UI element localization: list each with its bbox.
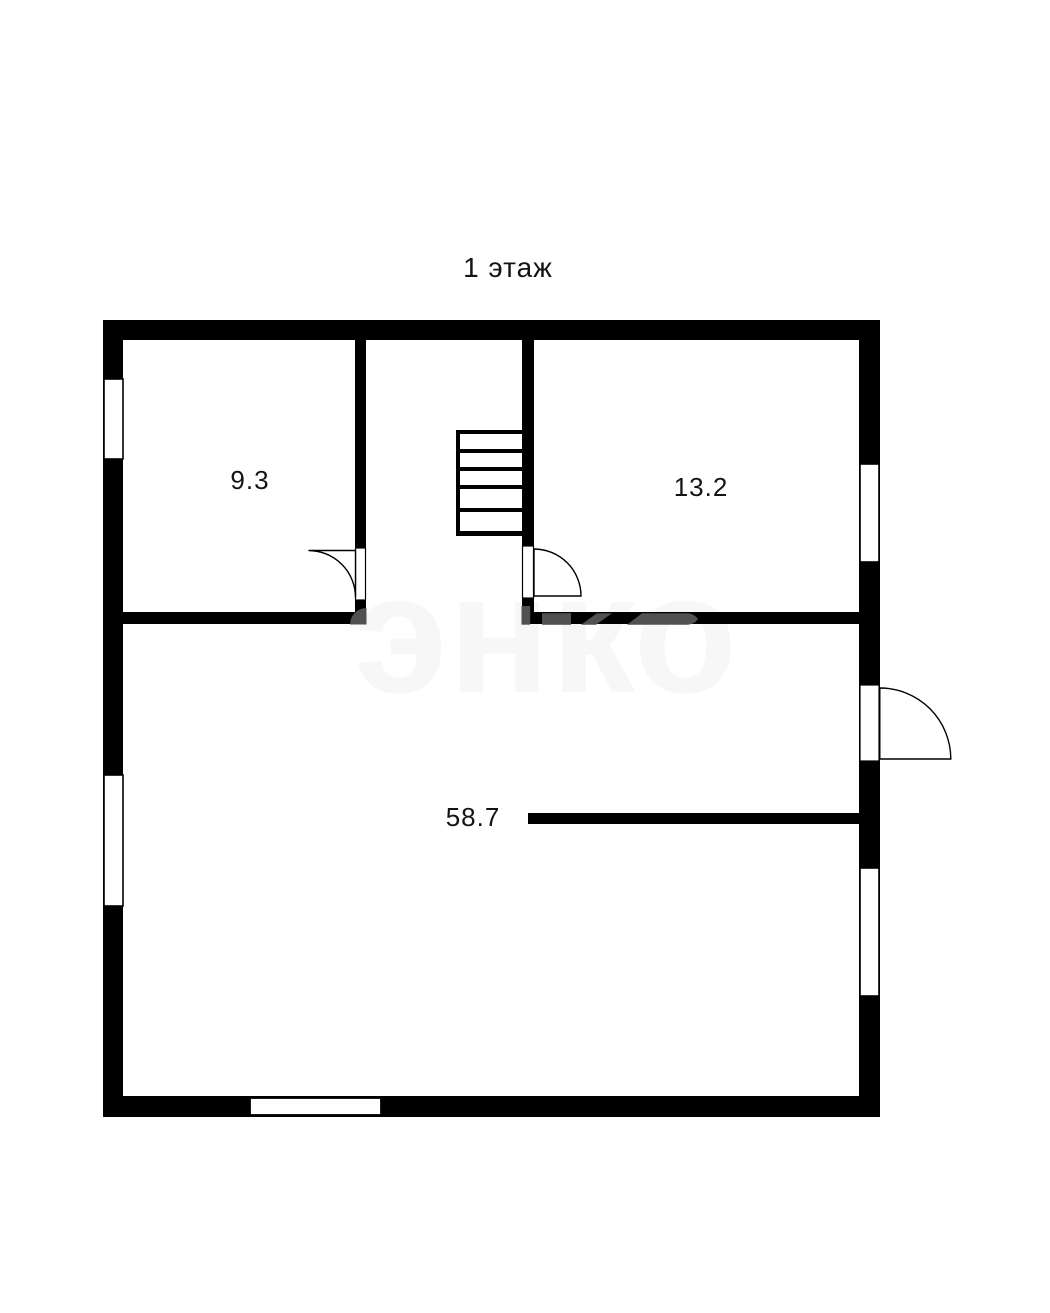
svg-text:9.3: 9.3 <box>230 465 269 495</box>
svg-text:58.7: 58.7 <box>446 802 501 832</box>
svg-text:1 этаж: 1 этаж <box>463 252 553 283</box>
svg-text:13.2: 13.2 <box>674 472 729 502</box>
